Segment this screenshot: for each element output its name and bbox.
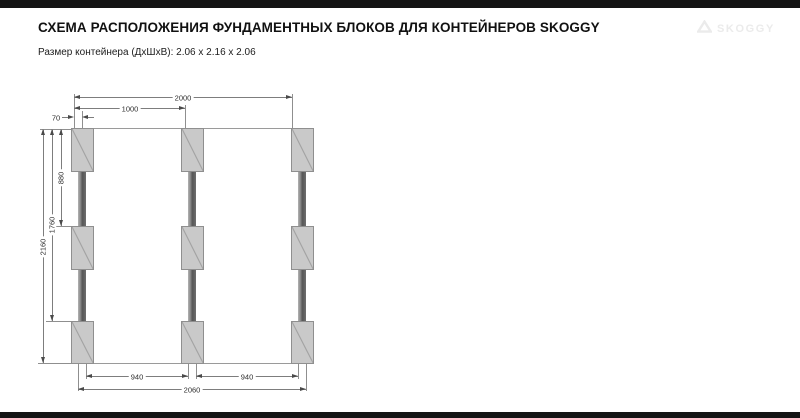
extension-line	[188, 364, 189, 379]
dim-arrow	[41, 129, 45, 135]
extension-line	[46, 321, 71, 322]
foundation-layout-diagram: 2000 1000 70 880 1760 2160 940 940 2060	[0, 0, 800, 418]
dim-arrow	[292, 374, 298, 378]
extension-line	[74, 94, 75, 128]
dim-label-1760: 1760	[48, 215, 56, 236]
dim-arrow	[50, 129, 54, 135]
extension-line	[82, 111, 83, 128]
dim-arrow	[74, 106, 80, 110]
foundation-block	[181, 128, 204, 172]
dim-label-940-left: 940	[129, 373, 146, 381]
beam	[188, 170, 196, 228]
beam	[298, 268, 306, 323]
beam	[188, 268, 196, 323]
dim-arrow	[59, 220, 63, 226]
dim-arrow	[196, 374, 202, 378]
dim-label-940-right: 940	[239, 373, 256, 381]
dim-arrow	[82, 115, 88, 119]
dim-arrow	[182, 374, 188, 378]
dim-label-2160: 2160	[39, 237, 47, 258]
dim-arrow	[50, 315, 54, 321]
dim-label-70: 70	[50, 114, 62, 122]
dim-line-70-tail	[88, 117, 94, 118]
extension-line	[306, 364, 307, 391]
beam	[78, 268, 86, 323]
dim-arrow	[300, 387, 306, 391]
beam	[78, 170, 86, 228]
dim-arrow	[41, 357, 45, 363]
dim-arrow	[74, 95, 80, 99]
foundation-block	[291, 321, 314, 364]
dim-label-880: 880	[57, 170, 65, 187]
dim-arrow	[78, 387, 84, 391]
dim-arrow	[59, 129, 63, 135]
dim-arrow	[86, 374, 92, 378]
beam	[298, 170, 306, 228]
extension-line	[298, 364, 299, 379]
foundation-block	[181, 226, 204, 270]
foundation-block	[71, 321, 94, 364]
dim-arrow	[179, 106, 185, 110]
extension-line	[185, 105, 186, 128]
extension-line	[38, 363, 71, 364]
dim-arrow	[286, 95, 292, 99]
dim-arrow	[68, 115, 74, 119]
foundation-block	[181, 321, 204, 364]
foundation-block	[71, 128, 94, 172]
foundation-block	[71, 226, 94, 270]
foundation-block	[291, 128, 314, 172]
dim-label-1000: 1000	[120, 105, 141, 113]
dim-label-2060: 2060	[182, 386, 203, 394]
dim-label-2000: 2000	[173, 94, 194, 102]
extension-line	[56, 226, 78, 227]
foundation-block	[291, 226, 314, 270]
extension-line	[292, 94, 293, 128]
